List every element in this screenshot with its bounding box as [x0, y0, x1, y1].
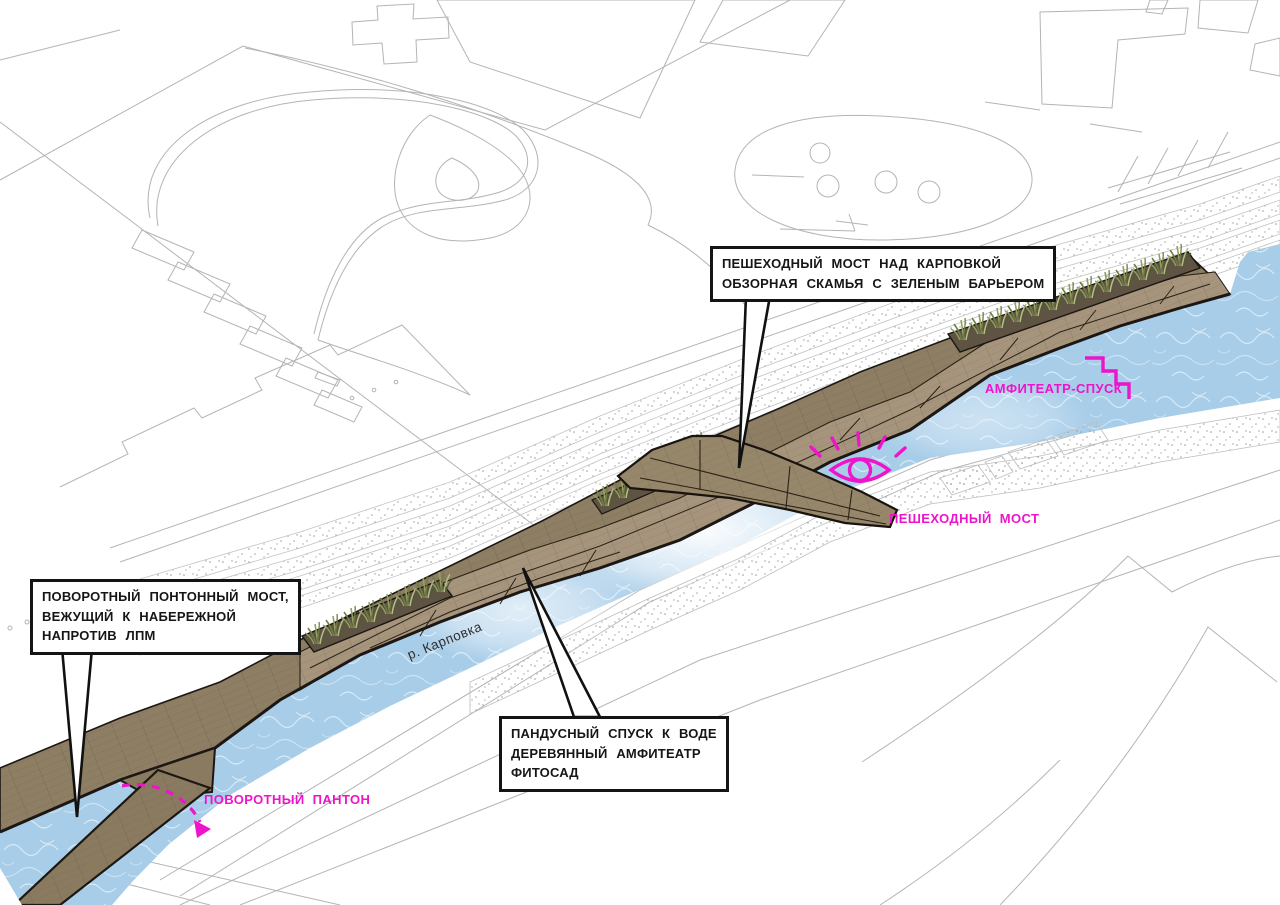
- callout-line: ОБЗОРНАЯ СКАМЬЯ С ЗЕЛЕНЫМ БАРЬЕРОМ: [722, 274, 1044, 294]
- callout-line: ПАНДУСНЫЙ СПУСК К ВОДЕ: [511, 724, 717, 744]
- label-rotating-pontoon: ПОВОРОТНЫЙ ПАНТОН: [204, 792, 370, 807]
- callout-line: ПОВОРОТНЫЙ ПОНТОННЫЙ МОСТ,: [42, 587, 289, 607]
- label-amphitheatre-descent: АМФИТЕАТР-СПУСК: [985, 381, 1122, 396]
- callout-line: ВЕЖУЩИЙ К НАБЕРЕЖНОЙ: [42, 607, 289, 627]
- label-pedestrian-bridge: ПЕШЕХОДНЫЙ МОСТ: [889, 511, 1039, 526]
- callout-pontoon-bridge: ПОВОРОТНЫЙ ПОНТОННЫЙ МОСТ, ВЕЖУЩИЙ К НАБ…: [30, 579, 301, 655]
- callout-ramp: ПАНДУСНЫЙ СПУСК К ВОДЕ ДЕРЕВЯННЫЙ АМФИТЕ…: [499, 716, 729, 792]
- callout-line: ФИТОСАД: [511, 763, 717, 783]
- callout-line: ПЕШЕХОДНЫЙ МОСТ НАД КАРПОВКОЙ: [722, 254, 1044, 274]
- embankment-diagram-page: { "diagram": { "river_label": "р. Карпов…: [0, 0, 1280, 905]
- callout-line: ДЕРЕВЯННЫЙ АМФИТЕАТР: [511, 744, 717, 764]
- callout-line: НАПРОТИВ ЛПМ: [42, 626, 289, 646]
- callout-pedestrian-bridge: ПЕШЕХОДНЫЙ МОСТ НАД КАРПОВКОЙ ОБЗОРНАЯ С…: [710, 246, 1056, 302]
